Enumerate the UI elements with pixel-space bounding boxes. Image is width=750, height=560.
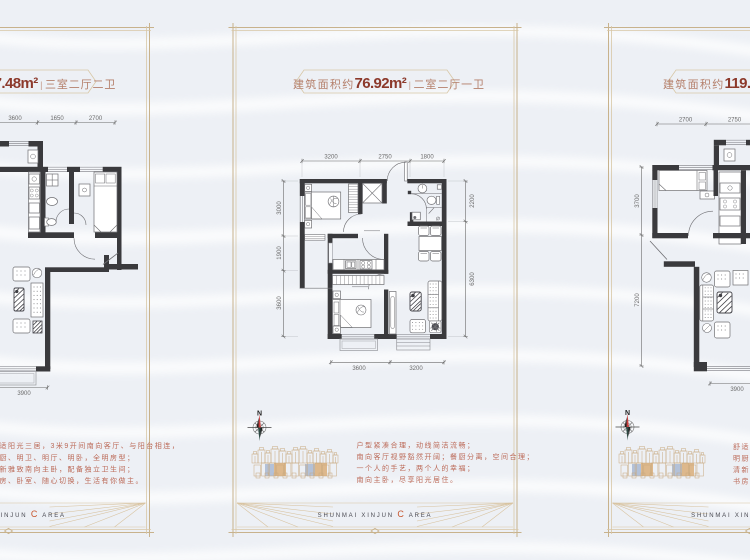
- svg-text:南向客厅视野豁然开阔；餐厨分离，空间合理；: 南向客厅视野豁然开阔；餐厨分离，空间合理；: [357, 452, 536, 461]
- svg-text:清新雅致南向主卧，配备独立卫生间；: 清新雅致南向主卧，配备独立卫生间；: [0, 465, 136, 474]
- svg-text:2750: 2750: [728, 118, 742, 124]
- svg-text:3700: 3700: [635, 194, 641, 208]
- svg-text:3200: 3200: [324, 155, 338, 161]
- svg-text:3200: 3200: [409, 366, 423, 372]
- svg-text:舒适阳光三居，3米9开间南向客厅、与阳台相连，: 舒适阳光三居，3米9开间南向客厅、与阳台相连，: [733, 442, 750, 451]
- svg-text:1650: 1650: [50, 116, 64, 122]
- svg-text:3000: 3000: [277, 201, 283, 215]
- svg-text:1900: 1900: [277, 246, 283, 260]
- svg-text:2200: 2200: [470, 194, 476, 208]
- svg-text:3600: 3600: [277, 296, 283, 310]
- svg-text:南向主卧，尽享阳光居住。: 南向主卧，尽享阳光居住。: [357, 475, 459, 484]
- svg-text:书房、卧室、随心切换，生活有你做主。: 书房、卧室、随心切换，生活有你做主。: [0, 476, 144, 485]
- svg-text:3900: 3900: [730, 387, 744, 393]
- svg-text:清新雅致南向主卧，配备独立卫生间；: 清新雅致南向主卧，配备独立卫生间；: [733, 465, 750, 474]
- svg-text:书房、卧室、随心切换，生活有你做主。: 书房、卧室、随心切换，生活有你做主。: [733, 477, 750, 486]
- svg-text:2700: 2700: [679, 118, 693, 124]
- svg-text:6300: 6300: [470, 272, 476, 286]
- svg-text:1800: 1800: [420, 155, 434, 161]
- svg-text:7200: 7200: [635, 293, 641, 307]
- svg-text:2700: 2700: [89, 116, 103, 122]
- svg-text:一个人的手艺，两个人的幸福；: 一个人的手艺，两个人的幸福；: [357, 464, 476, 473]
- svg-text:舒适阳光三居，3米9开间南向客厅、与阳台相连，: 舒适阳光三居，3米9开间南向客厅、与阳台相连，: [0, 441, 180, 450]
- svg-text:户型紧凑合理，动线简洁流畅；: 户型紧凑合理，动线简洁流畅；: [357, 441, 476, 450]
- svg-text:明厨、明卫、明厅、明卧，全明房型；: 明厨、明卫、明厅、明卧，全明房型；: [733, 454, 750, 463]
- svg-text:2750: 2750: [378, 155, 392, 161]
- svg-text:明厨、明卫、明厅、明卧，全明房型；: 明厨、明卫、明厅、明卧，全明房型；: [0, 453, 136, 462]
- svg-text:3600: 3600: [352, 366, 366, 372]
- svg-text:3600: 3600: [8, 116, 22, 122]
- svg-text:3900: 3900: [17, 391, 31, 397]
